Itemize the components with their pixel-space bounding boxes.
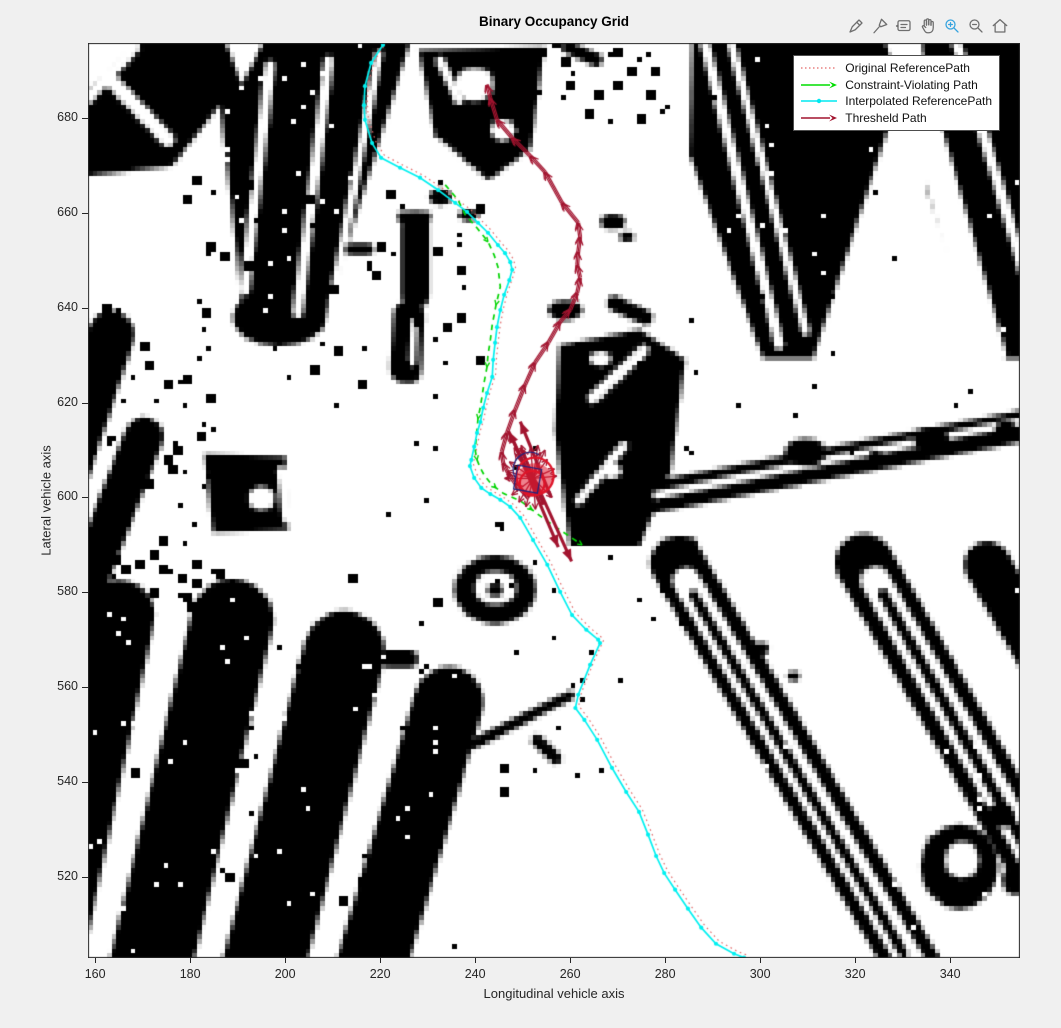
y-tick-mark	[82, 118, 88, 119]
x-tick-label: 180	[165, 967, 215, 981]
legend-item-constraint: Constraint-Violating Path	[800, 77, 992, 94]
y-tick-label: 620	[32, 395, 78, 409]
y-tick-mark	[82, 308, 88, 309]
legend-item-thresheld: Thresheld Path	[800, 110, 992, 127]
x-tick-mark	[475, 958, 476, 963]
toolbar-zoom-out-button[interactable]	[965, 17, 987, 39]
toolbar-export-button[interactable]	[845, 17, 867, 39]
y-tick-label: 600	[32, 489, 78, 503]
x-tick-mark	[570, 958, 571, 963]
x-tick-label: 300	[735, 967, 785, 981]
x-tick-label: 200	[260, 967, 310, 981]
y-tick-mark	[82, 877, 88, 878]
y-tick-mark	[82, 213, 88, 214]
x-tick-label: 220	[355, 967, 405, 981]
y-tick-mark	[82, 782, 88, 783]
brush-icon	[871, 17, 889, 40]
datatips-icon	[895, 17, 913, 40]
x-tick-label: 280	[640, 967, 690, 981]
legend-sample-maroon-arrow	[800, 112, 838, 124]
y-tick-mark	[82, 403, 88, 404]
matlab-figure: Binary Occupancy Grid	[0, 0, 1061, 1028]
x-tick-mark	[190, 958, 191, 963]
x-tick-label: 340	[925, 967, 975, 981]
axes-toolbar	[845, 17, 1011, 39]
x-tick-mark	[665, 958, 666, 963]
x-tick-mark	[95, 958, 96, 963]
toolbar-datatips-button[interactable]	[893, 17, 915, 39]
x-tick-label: 260	[545, 967, 595, 981]
pan-icon	[919, 17, 937, 40]
legend-label: Constraint-Violating Path	[845, 78, 978, 92]
plot-area[interactable]	[88, 43, 1020, 958]
x-tick-mark	[760, 958, 761, 963]
legend[interactable]: Original ReferencePath Constraint-Violat…	[793, 55, 1000, 131]
x-tick-label: 160	[70, 967, 120, 981]
legend-sample-cyan-marker-line	[800, 95, 838, 107]
legend-label: Original ReferencePath	[845, 61, 970, 75]
x-tick-mark	[950, 958, 951, 963]
y-tick-label: 580	[32, 584, 78, 598]
toolbar-brush-button[interactable]	[869, 17, 891, 39]
toolbar-zoom-in-button[interactable]	[941, 17, 963, 39]
y-tick-mark	[82, 497, 88, 498]
export-icon	[847, 17, 865, 40]
toolbar-pan-button[interactable]	[917, 17, 939, 39]
y-tick-mark	[82, 687, 88, 688]
zoom-in-icon	[943, 17, 961, 40]
x-tick-label: 240	[450, 967, 500, 981]
y-tick-label: 680	[32, 110, 78, 124]
home-icon	[991, 17, 1009, 40]
x-axis-label: Longitudinal vehicle axis	[88, 986, 1020, 1001]
y-tick-label: 660	[32, 205, 78, 219]
legend-item-original: Original ReferencePath	[800, 60, 992, 77]
toolbar-restore-view-button[interactable]	[989, 17, 1011, 39]
plot-box: Original ReferencePath Constraint-Violat…	[88, 43, 1020, 958]
zoom-out-icon	[967, 17, 985, 40]
legend-sample-dotted-line	[800, 62, 838, 74]
x-tick-mark	[380, 958, 381, 963]
y-tick-label: 520	[32, 869, 78, 883]
x-tick-label: 320	[830, 967, 880, 981]
legend-label: Interpolated ReferencePath	[845, 94, 992, 108]
x-tick-mark	[855, 958, 856, 963]
legend-item-interpolated: Interpolated ReferencePath	[800, 93, 992, 110]
legend-label: Thresheld Path	[845, 111, 926, 125]
y-tick-label: 560	[32, 679, 78, 693]
y-tick-label: 640	[32, 300, 78, 314]
y-tick-mark	[82, 592, 88, 593]
x-tick-mark	[285, 958, 286, 963]
legend-sample-green-arrow	[800, 79, 838, 91]
y-tick-label: 540	[32, 774, 78, 788]
